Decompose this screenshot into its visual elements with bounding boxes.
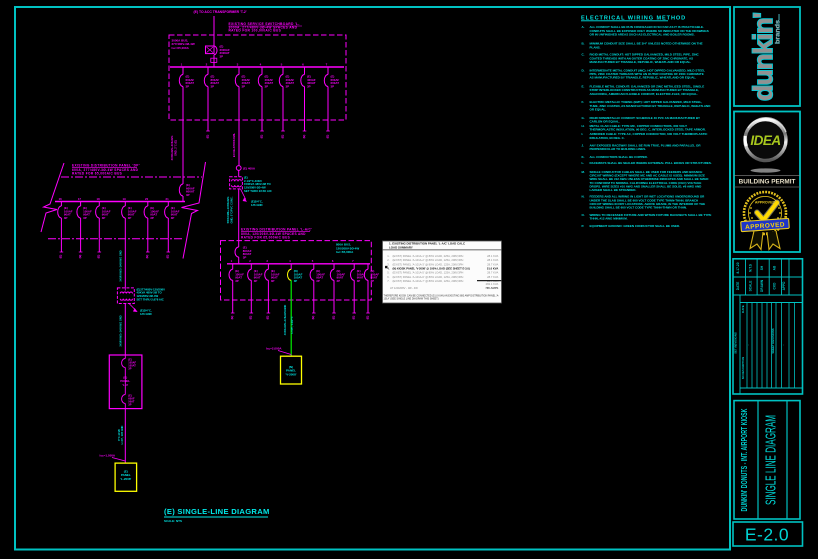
svg-text:21: 21	[166, 197, 170, 201]
svg-text:INSULATION, 90 DEG. C.: INSULATION, 90 DEG. C.	[590, 136, 625, 140]
svg-text:(E): (E)	[266, 316, 270, 320]
svg-text:SINGLE LINE DIAGRAM: SINGLE LINE DIAGRAM	[764, 415, 780, 505]
svg-text:PLANS.: PLANS.	[590, 45, 601, 49]
svg-text:3P: 3P	[186, 84, 190, 88]
svg-text:51.0 KVA: 51.0 KVA	[487, 266, 499, 270]
svg-text:3P: 3P	[64, 216, 68, 220]
svg-text:3P: 3P	[307, 84, 311, 88]
svg-text:(E): (E)	[331, 316, 335, 320]
svg-text:3P: 3P	[102, 216, 106, 220]
svg-text:MINIMUM CONDUIT SIZE SHALL BE: MINIMUM CONDUIT SIZE SHALL BE 3/4" UNLES…	[590, 42, 703, 46]
svg-text:LARGER SHALL BE STRANDED.: LARGER SHALL BE STRANDED.	[590, 188, 637, 192]
svg-text:E.: E.	[582, 85, 585, 89]
svg-text:4: 4	[289, 259, 291, 263]
svg-text:4#3/0AWG+1#6AWGGND: 4#3/0AWG+1#6AWGGND	[283, 305, 287, 336]
svg-text:3P: 3P	[186, 193, 190, 197]
svg-text:(EXIST) PANEL 'A-101A-3' @ 80%: (EXIST) PANEL 'A-101A-3' @ 80% LOAD, 125…	[393, 262, 464, 266]
svg-text:(E) TO ACC TRANSFORMER 'T-2': (E) TO ACC TRANSFORMER 'T-2'	[194, 10, 247, 14]
svg-text:EXISTING DISTRIBUTION PANEL 'D: EXISTING DISTRIBUTION PANEL 'DP'	[72, 164, 140, 168]
svg-text:A.: A.	[582, 25, 585, 29]
svg-text:785 AMPS: 785 AMPS	[485, 286, 498, 290]
svg-text:L.: L.	[582, 161, 585, 165]
svg-text:Isc=65,000A: Isc=65,000A	[336, 250, 354, 254]
svg-text:28.7 KVA: 28.7 KVA	[487, 262, 498, 266]
svg-text:(E) SINGLE-LINE DIAGRAM: (E) SINGLE-LINE DIAGRAM	[164, 507, 270, 516]
svg-text:1#6 GND: 1#6 GND	[140, 312, 152, 316]
svg-text:L=40', 1#8 GND: L=40', 1#8 GND	[120, 425, 124, 444]
svg-text:3P: 3P	[235, 279, 239, 283]
svg-text:3P: 3P	[294, 279, 298, 283]
svg-text:2: 2	[249, 259, 251, 263]
svg-text:L=45', 1-1/2"C: L=45', 1-1/2"C	[290, 316, 294, 333]
svg-text:'L-4': 'L-4'	[122, 383, 128, 387]
svg-text:TUBE, ZINC COATED, AS MANUFACT: TUBE, ZINC COATED, AS MANUFACTURED BY TR…	[590, 104, 712, 108]
svg-text:ALL CONDUCTORS SHALL BE COPPER: ALL CONDUCTORS SHALL BE COPPER.	[590, 155, 648, 159]
svg-text:(E): (E)	[365, 316, 369, 320]
svg-text:3P: 3P	[83, 216, 87, 220]
svg-text:1: 1	[181, 62, 183, 66]
svg-text:3P: 3P	[331, 84, 335, 88]
svg-text:-: -	[781, 344, 785, 345]
svg-text:-: -	[747, 344, 751, 345]
svg-text:O.: O.	[582, 213, 585, 217]
svg-text:RATED FOR 100,000AIC BUS: RATED FOR 100,000AIC BUS	[229, 28, 282, 32]
svg-text:(E): (E)	[302, 135, 306, 139]
svg-text:3P: 3P	[150, 216, 154, 220]
svg-text:3#3/0AWG+1#6AWG GND: 3#3/0AWG+1#6AWG GND	[119, 250, 123, 281]
svg-text:2.: 2.	[387, 258, 389, 262]
svg-text:18: 18	[97, 197, 101, 201]
svg-text:C.: C.	[582, 53, 585, 57]
svg-text:RATED FOR 65,000AIC BUS: RATED FOR 65,000AIC BUS	[72, 171, 122, 175]
svg-text:(E): (E)	[259, 135, 263, 139]
svg-text:SCALE: SCALE	[748, 281, 752, 292]
svg-text:16: 16	[59, 197, 63, 201]
svg-text:7: 7	[352, 259, 354, 263]
svg-text:3P: 3P	[171, 216, 175, 220]
svg-text:SET THRU 22.5K AIC: SET THRU 22.5K AIC	[244, 189, 272, 193]
svg-text:(EXIST) PANEL 'A-101A-5' @ 80%: (EXIST) PANEL 'A-101A-5' @ 80% LOAD, 125…	[393, 271, 464, 275]
svg-text:3P: 3P	[128, 216, 132, 220]
svg-text:101A' (SEE SINGLE LINE DIAGRAM: 101A' (SEE SINGLE LINE DIAGRAM THIS SHEE…	[384, 298, 439, 301]
svg-text:BUILDING PERMIT: BUILDING PERMIT	[739, 179, 796, 186]
svg-text:7: 7	[326, 62, 328, 66]
svg-text:3P: 3P	[316, 279, 320, 283]
svg-text:4: 4	[260, 62, 262, 66]
svg-text:CKD: CKD	[772, 282, 776, 290]
svg-text:3#3/0AWG+1#6AWG: 3#3/0AWG+1#6AWG	[170, 136, 174, 161]
svg-text:E-2.0: E-2.0	[745, 525, 789, 545]
svg-text:AS MANUFACTURED BY TRIANGLE, R: AS MANUFACTURED BY TRIANGLE, REPUBLIC, W…	[590, 76, 697, 80]
svg-text:3P: 3P	[211, 84, 215, 88]
svg-text:3P: 3P	[128, 367, 131, 371]
svg-text:6.: 6.	[387, 275, 389, 279]
svg-text:P.: P.	[582, 224, 585, 228]
svg-text:28.1 KVA: 28.1 KVA	[487, 254, 498, 258]
svg-text:3P: 3P	[337, 279, 341, 283]
svg-text:28.7 KVA: 28.7 KVA	[487, 275, 498, 279]
svg-text:NO DESCRIPTION: NO DESCRIPTION	[741, 357, 745, 379]
svg-text:(E): (E)	[249, 316, 253, 320]
svg-text:3.: 3.	[387, 262, 389, 266]
svg-text:GND, 3"C/PVC CONC.: GND, 3"C/PVC CONC.	[229, 196, 233, 223]
svg-text:6: 6	[332, 259, 334, 263]
svg-text:(E): (E)	[230, 316, 234, 320]
svg-text:D.: D.	[582, 68, 585, 72]
svg-text:DRAWN: DRAWN	[760, 279, 764, 292]
svg-text:PERPENDICULAR TO BUILDING LINE: PERPENDICULAR TO BUILDING LINES.	[590, 147, 647, 151]
svg-text:OR IN UNFINISHED AREAS SUCH AS: OR IN UNFINISHED AREAS SUCH AS ELECTRICA…	[590, 32, 695, 36]
svg-text:8-17-20: 8-17-20	[736, 262, 740, 273]
svg-text:SET REVISIONS: SET REVISIONS	[734, 332, 738, 354]
svg-text:2: 2	[206, 62, 208, 66]
svg-text:1.: 1.	[387, 254, 389, 258]
svg-text:(E): (E)	[166, 255, 170, 259]
svg-text:(EXIST) PANEL 'A-101A-2' @ 80%: (EXIST) PANEL 'A-101A-2' @ 80% LOAD, 125…	[393, 258, 464, 262]
svg-text:4.: 4.	[387, 266, 389, 270]
svg-text:ANACONDA, AMERICAN FLEXIBLE CO: ANACONDA, AMERICAN FLEXIBLE CONDUIT, ELE…	[590, 92, 699, 96]
svg-text:SCALE: NTS: SCALE: NTS	[164, 519, 182, 523]
svg-text:K.: K.	[582, 155, 585, 159]
svg-text:17: 17	[78, 197, 82, 201]
svg-text:AT 120/208V - 3Ø - 4W: AT 120/208V - 3Ø - 4W	[390, 286, 418, 290]
svg-text:7.: 7.	[387, 279, 389, 283]
svg-text:DATE: DATE	[736, 282, 740, 290]
svg-text:dunkin': dunkin'	[748, 12, 778, 100]
svg-text:(E): (E)	[280, 135, 284, 139]
svg-text:3P: 3P	[371, 279, 375, 283]
svg-text:3P: 3P	[357, 279, 361, 283]
svg-text:(E): (E)	[352, 316, 356, 320]
svg-text:3P: 3P	[128, 403, 131, 407]
svg-text:OR EQUAL.: OR EQUAL.	[590, 108, 607, 112]
svg-text:3#3/0AWG+1#6AWG GND: 3#3/0AWG+1#6AWG GND	[119, 315, 123, 346]
svg-text:1#6 GND: 1#6 GND	[251, 203, 263, 207]
svg-text:5: 5	[312, 259, 314, 263]
svg-text:SH: SH	[760, 265, 764, 270]
svg-text:(E): (E)	[325, 135, 329, 139]
svg-text:(E): (E)	[78, 255, 82, 259]
svg-text:AB: AB	[772, 265, 776, 270]
svg-text:5.: 5.	[387, 271, 389, 275]
svg-text:19: 19	[123, 197, 127, 201]
svg-text:IDEA: IDEA	[750, 133, 780, 148]
svg-text:3''C-1#1/0: 3''C-1#1/0	[117, 428, 121, 440]
svg-text:28.1 KVA: 28.1 KVA	[487, 258, 498, 262]
svg-text:ECC/E-3#500KCMIL: ECC/E-3#500KCMIL	[232, 132, 236, 157]
svg-text:3P: 3P	[286, 84, 290, 88]
svg-text:(E): (E)	[205, 135, 209, 139]
svg-text:N.T.S: N.T.S	[748, 264, 752, 272]
svg-text:Isc=65,000A: Isc=65,000A	[172, 46, 190, 50]
svg-text:(E) 400A: (E) 400A	[243, 166, 256, 170]
svg-text:APPD: APPD	[782, 281, 786, 291]
svg-text:RACEWAYS SHALL BE SEALED WHERE: RACEWAYS SHALL BE SEALED WHERE EXTERNAL …	[590, 161, 712, 165]
svg-text:J.: J.	[582, 144, 585, 148]
svg-text:THHN, #12 AWG MINIMUM.: THHN, #12 AWG MINIMUM.	[590, 217, 628, 221]
svg-text:1: 1	[231, 259, 233, 263]
svg-text:SET THRU 2,678 AIC: SET THRU 2,678 AIC	[137, 298, 164, 302]
svg-text:3P: 3P	[265, 84, 269, 88]
svg-text:6: 6	[302, 62, 304, 66]
svg-text:28.7 KVA: 28.7 KVA	[487, 271, 498, 275]
svg-text:'V-2008': 'V-2008'	[286, 372, 297, 376]
svg-text:N.: N.	[582, 195, 585, 199]
svg-text:BUILDING SHALL BE 600 VOLT COD: BUILDING SHALL BE 600 VOLT CODE TYPE THH…	[590, 206, 688, 210]
svg-text:(E): (E)	[145, 255, 149, 259]
svg-text:F.: F.	[582, 100, 585, 104]
svg-text:Isc=1,050A: Isc=1,050A	[100, 454, 116, 458]
svg-text:(N) KIOSK PANEL 'V-2008' @ 100: (N) KIOSK PANEL 'V-2008' @ 100% LOAD (SE…	[393, 266, 470, 270]
svg-text:RATED FOR 65,000AIC BUS: RATED FOR 65,000AIC BUS	[241, 235, 290, 239]
svg-text:(E): (E)	[311, 316, 315, 320]
svg-text:(E): (E)	[97, 255, 101, 259]
svg-text:(EXIST) PANEL 'A-101A-1' @ 80%: (EXIST) PANEL 'A-101A-1' @ 80% LOAD, 225…	[393, 254, 464, 258]
svg-text:5: 5	[281, 62, 283, 66]
svg-text:SHEET REVISIONS: SHEET REVISIONS	[771, 328, 775, 353]
svg-text:DUNKIN' DONUTS - INT. AIRPORT: DUNKIN' DONUTS - INT. AIRPORT KIOSK	[740, 408, 749, 511]
svg-text:I.: I.	[582, 132, 584, 136]
svg-text:H.: H.	[582, 124, 585, 128]
svg-text:EXISTING DISTRIBUTION PANEL 'L: EXISTING DISTRIBUTION PANEL 'L-A/C'	[241, 228, 312, 232]
svg-text:20: 20	[145, 197, 149, 201]
svg-text:(E): (E)	[59, 255, 63, 259]
svg-text:3P: 3P	[271, 279, 275, 283]
svg-text:(EXIST) PANEL 'A-101A-7' @ 80%: (EXIST) PANEL 'A-101A-7' @ 80% LOAD, 125…	[393, 279, 464, 283]
svg-text:LOAD SUMMARY: LOAD SUMMARY	[389, 246, 413, 250]
svg-text:brands...: brands...	[776, 14, 782, 44]
svg-text:G.: G.	[582, 116, 585, 120]
svg-text:3: 3	[266, 259, 268, 263]
svg-text:500KCMIL+1#3/0AWG: 500KCMIL+1#3/0AWG	[226, 197, 230, 224]
svg-text:3P: 3P	[242, 84, 246, 88]
svg-text:THERMOPLASTIC INSULATION, 90 D: THERMOPLASTIC INSULATION, 90 DEG. C, INT…	[590, 128, 706, 132]
svg-text:DATE: DATE	[741, 305, 745, 313]
svg-text:GND, 2"C (E): GND, 2"C (E)	[174, 140, 178, 156]
svg-text:'L-2008': 'L-2008'	[120, 477, 131, 481]
svg-text:MANUFACTURED BY TRIANGLE, REPU: MANUFACTURED BY TRIANGLE, REPUBLIC, WHEA…	[590, 60, 692, 64]
svg-text:3P: 3P	[254, 279, 258, 283]
svg-text:(EXIST) PANEL 'A-101A-6' @ 80%: (EXIST) PANEL 'A-101A-6' @ 80% LOAD, 125…	[393, 275, 464, 279]
svg-text:3: 3	[237, 62, 239, 66]
svg-text:3P: 3P	[243, 256, 247, 260]
svg-text:EQUIPMENT GROUND: GREEN CONDUC: EQUIPMENT GROUND: GREEN CONDUCTOR SHALL …	[590, 224, 681, 228]
svg-text:M.: M.	[582, 170, 585, 174]
svg-text:Isc=2,000A: Isc=2,000A	[266, 347, 282, 351]
svg-text:282.1 KVA: 282.1 KVA	[486, 282, 499, 286]
svg-text:3P: 3P	[220, 54, 224, 58]
svg-text:B.: B.	[582, 42, 585, 46]
